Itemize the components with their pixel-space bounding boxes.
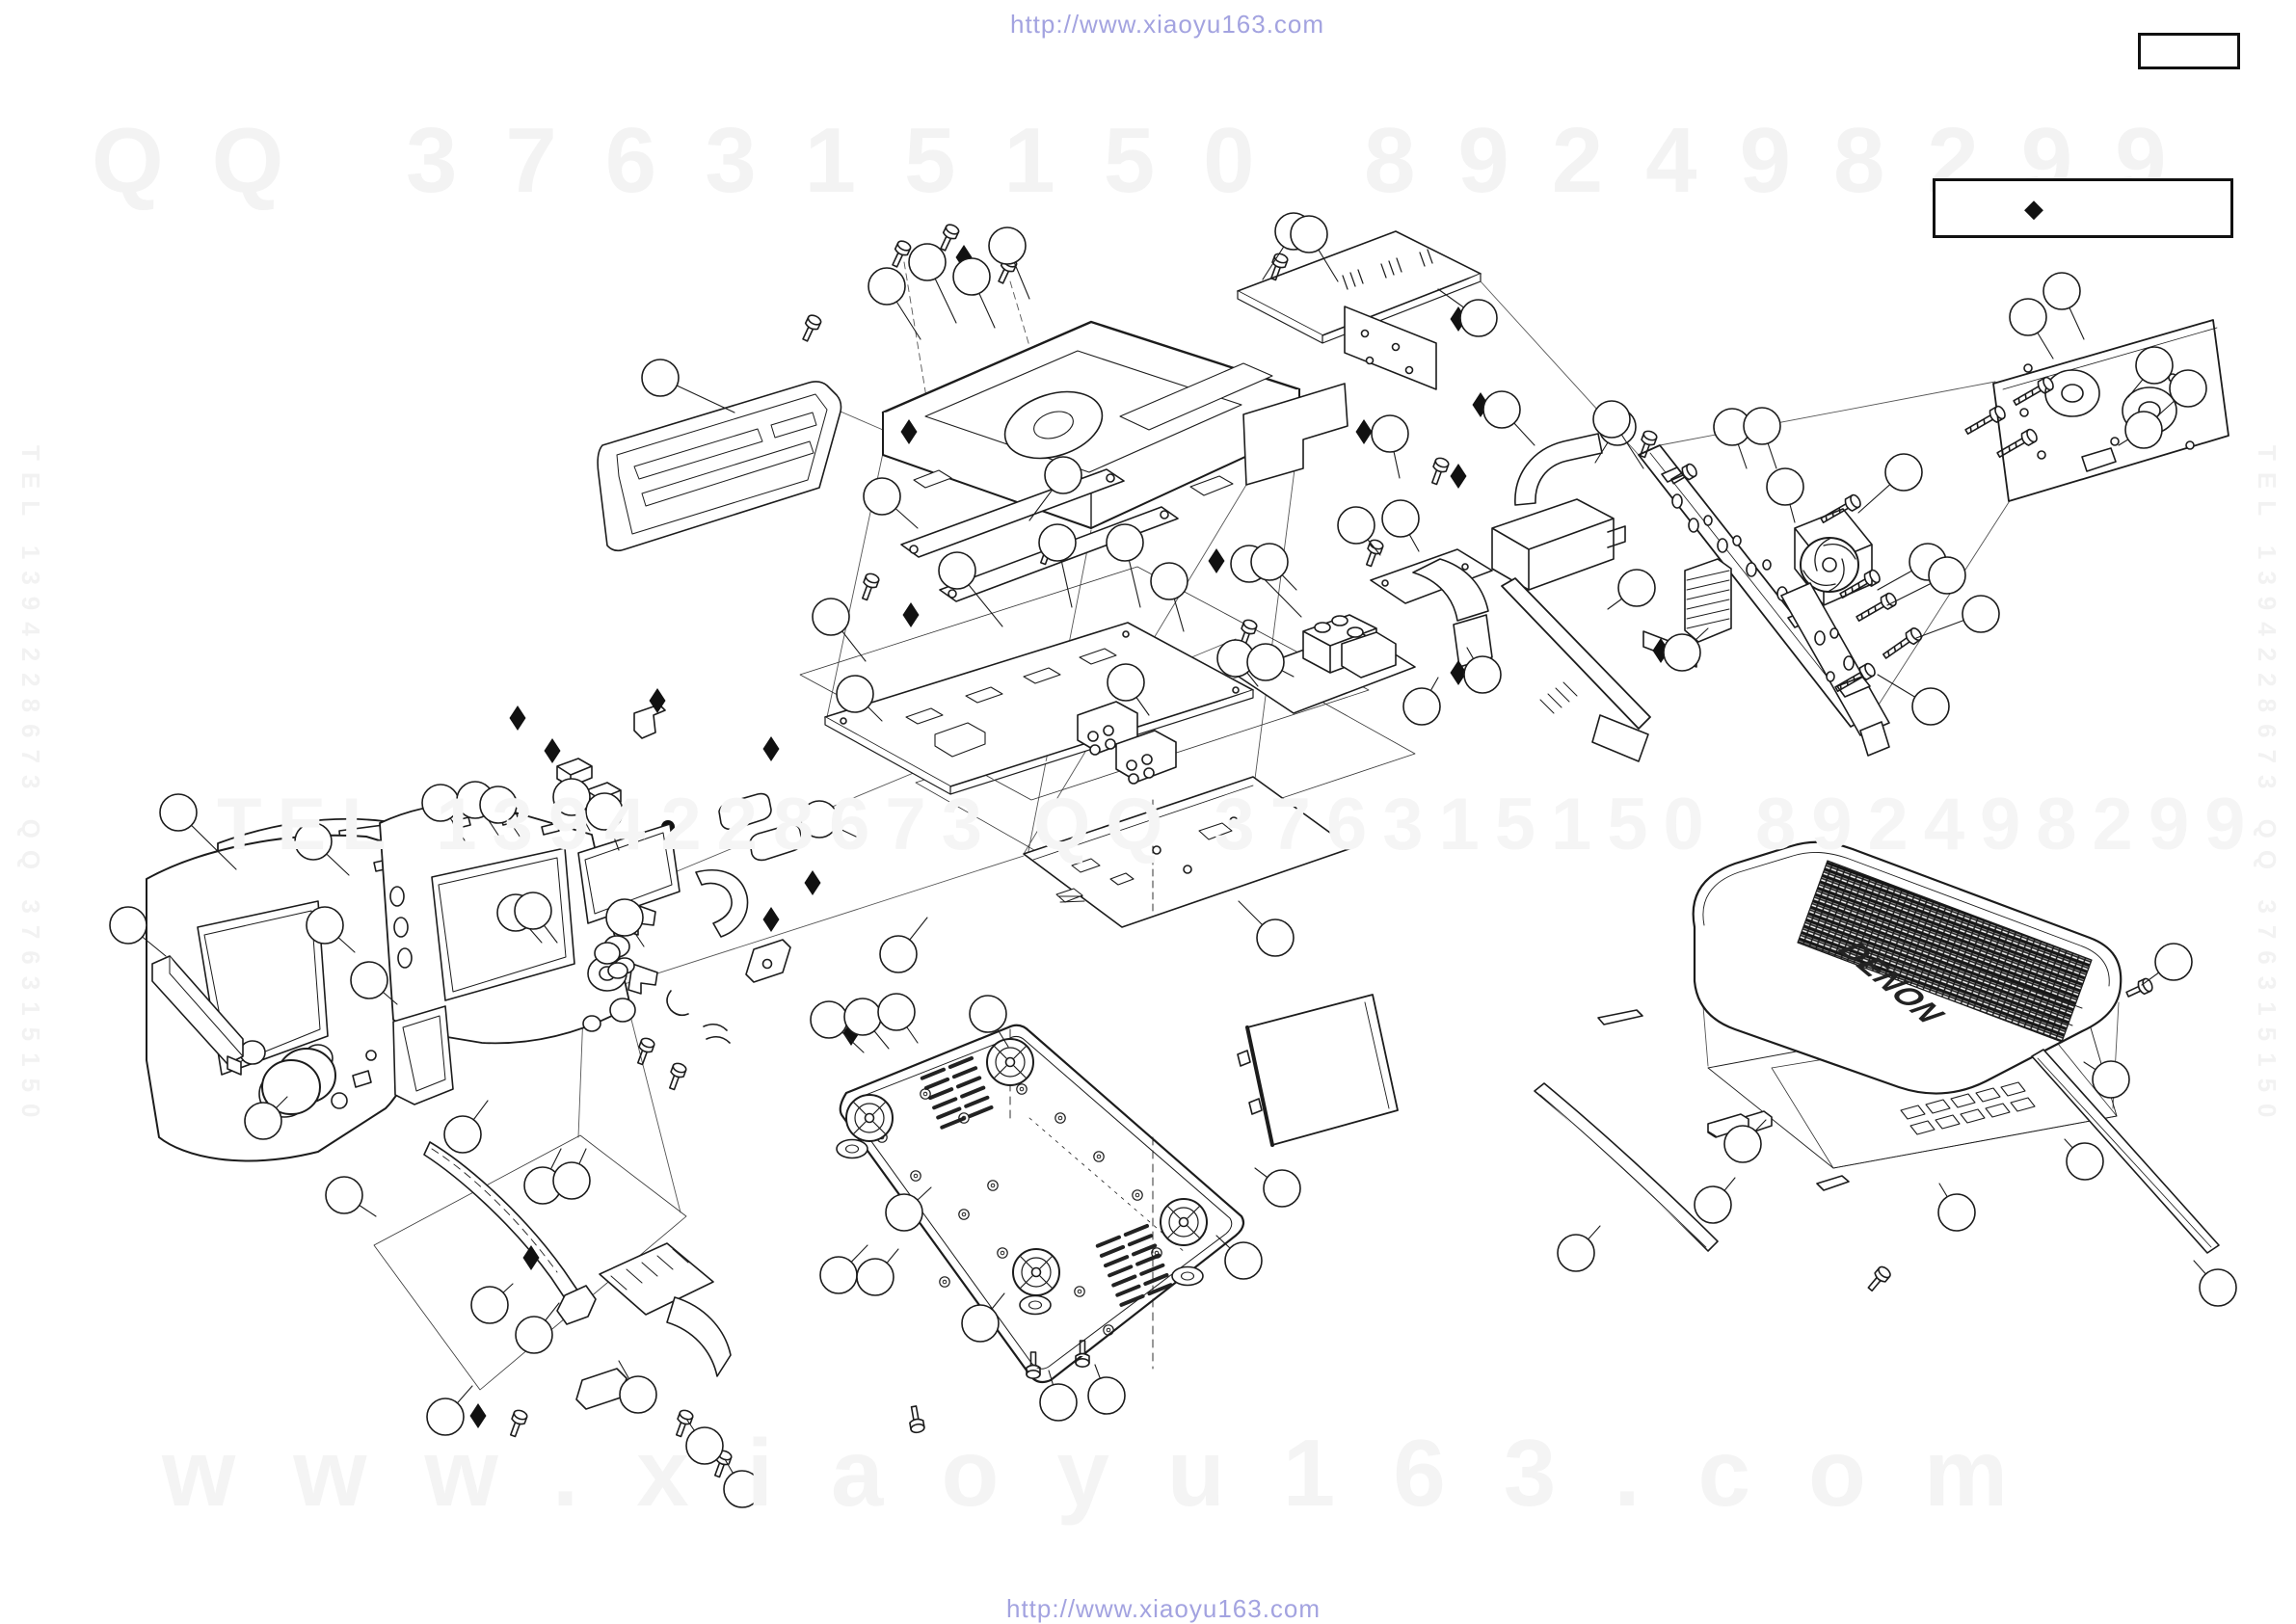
power-transformer	[1492, 434, 1625, 590]
display-pcb-assembly	[1238, 231, 1481, 389]
exploded-view-diagram: DENON	[0, 0, 2296, 1623]
page: { "header": { "url": "http://www.xiaoyu1…	[0, 0, 2296, 1623]
bottom-watermark-url: http://www.xiaoyu163.com	[1006, 1594, 1321, 1624]
top-cover: DENON	[1694, 842, 2122, 1094]
foot	[1161, 1199, 1207, 1245]
foot	[987, 1039, 1033, 1085]
main-pcb	[825, 623, 1253, 794]
side-door-panel	[1238, 995, 1398, 1145]
top-tray-panel	[598, 382, 841, 550]
legend-empty-box	[2138, 33, 2240, 69]
cd-mechanism	[883, 322, 1299, 533]
legend-note-box: ◆	[1933, 178, 2233, 238]
front-bottom-bracket	[393, 1006, 453, 1105]
rear-io-panel	[1993, 320, 2229, 501]
lower-chassis-pcb	[1024, 777, 1351, 927]
top-watermark-url: http://www.xiaoyu163.com	[1010, 10, 1324, 40]
chassis-rail	[1502, 578, 1650, 761]
washer	[1020, 1296, 1051, 1315]
diamond-marker-icon: ◆	[2024, 194, 2043, 224]
foot	[1013, 1249, 1059, 1295]
foot	[846, 1095, 893, 1141]
washer	[837, 1140, 868, 1158]
washer	[1172, 1267, 1203, 1286]
